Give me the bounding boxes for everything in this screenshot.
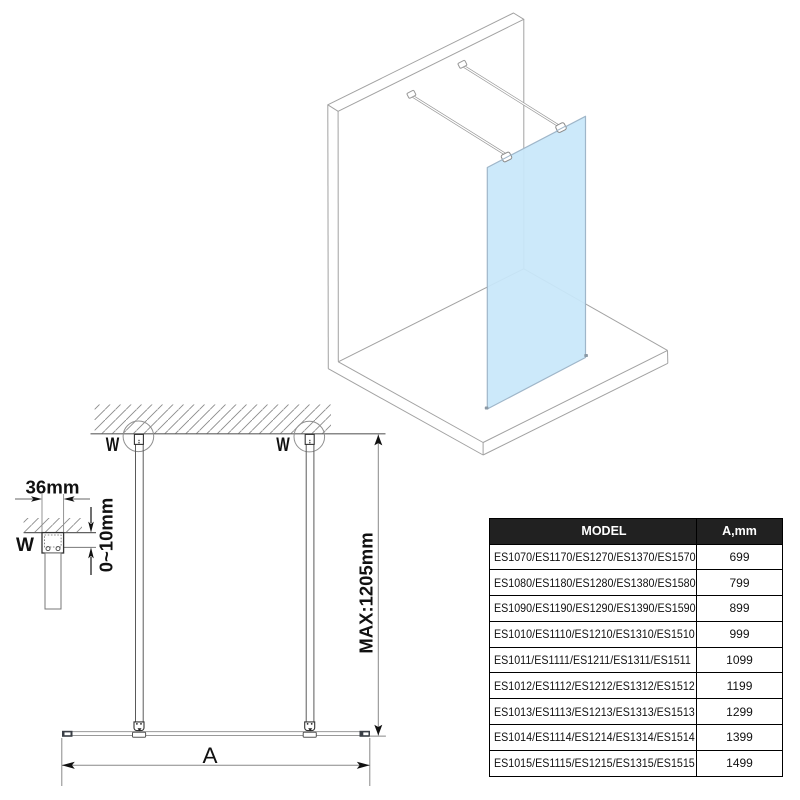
svg-text:W: W (16, 535, 34, 556)
svg-text:A: A (202, 743, 217, 768)
svg-text:0~10mm: 0~10mm (96, 498, 117, 573)
svg-text:MAX:1205mm: MAX:1205mm (356, 532, 377, 653)
svg-text:W: W (106, 435, 120, 456)
svg-text:W: W (276, 435, 290, 456)
svg-text:36mm: 36mm (26, 477, 80, 498)
